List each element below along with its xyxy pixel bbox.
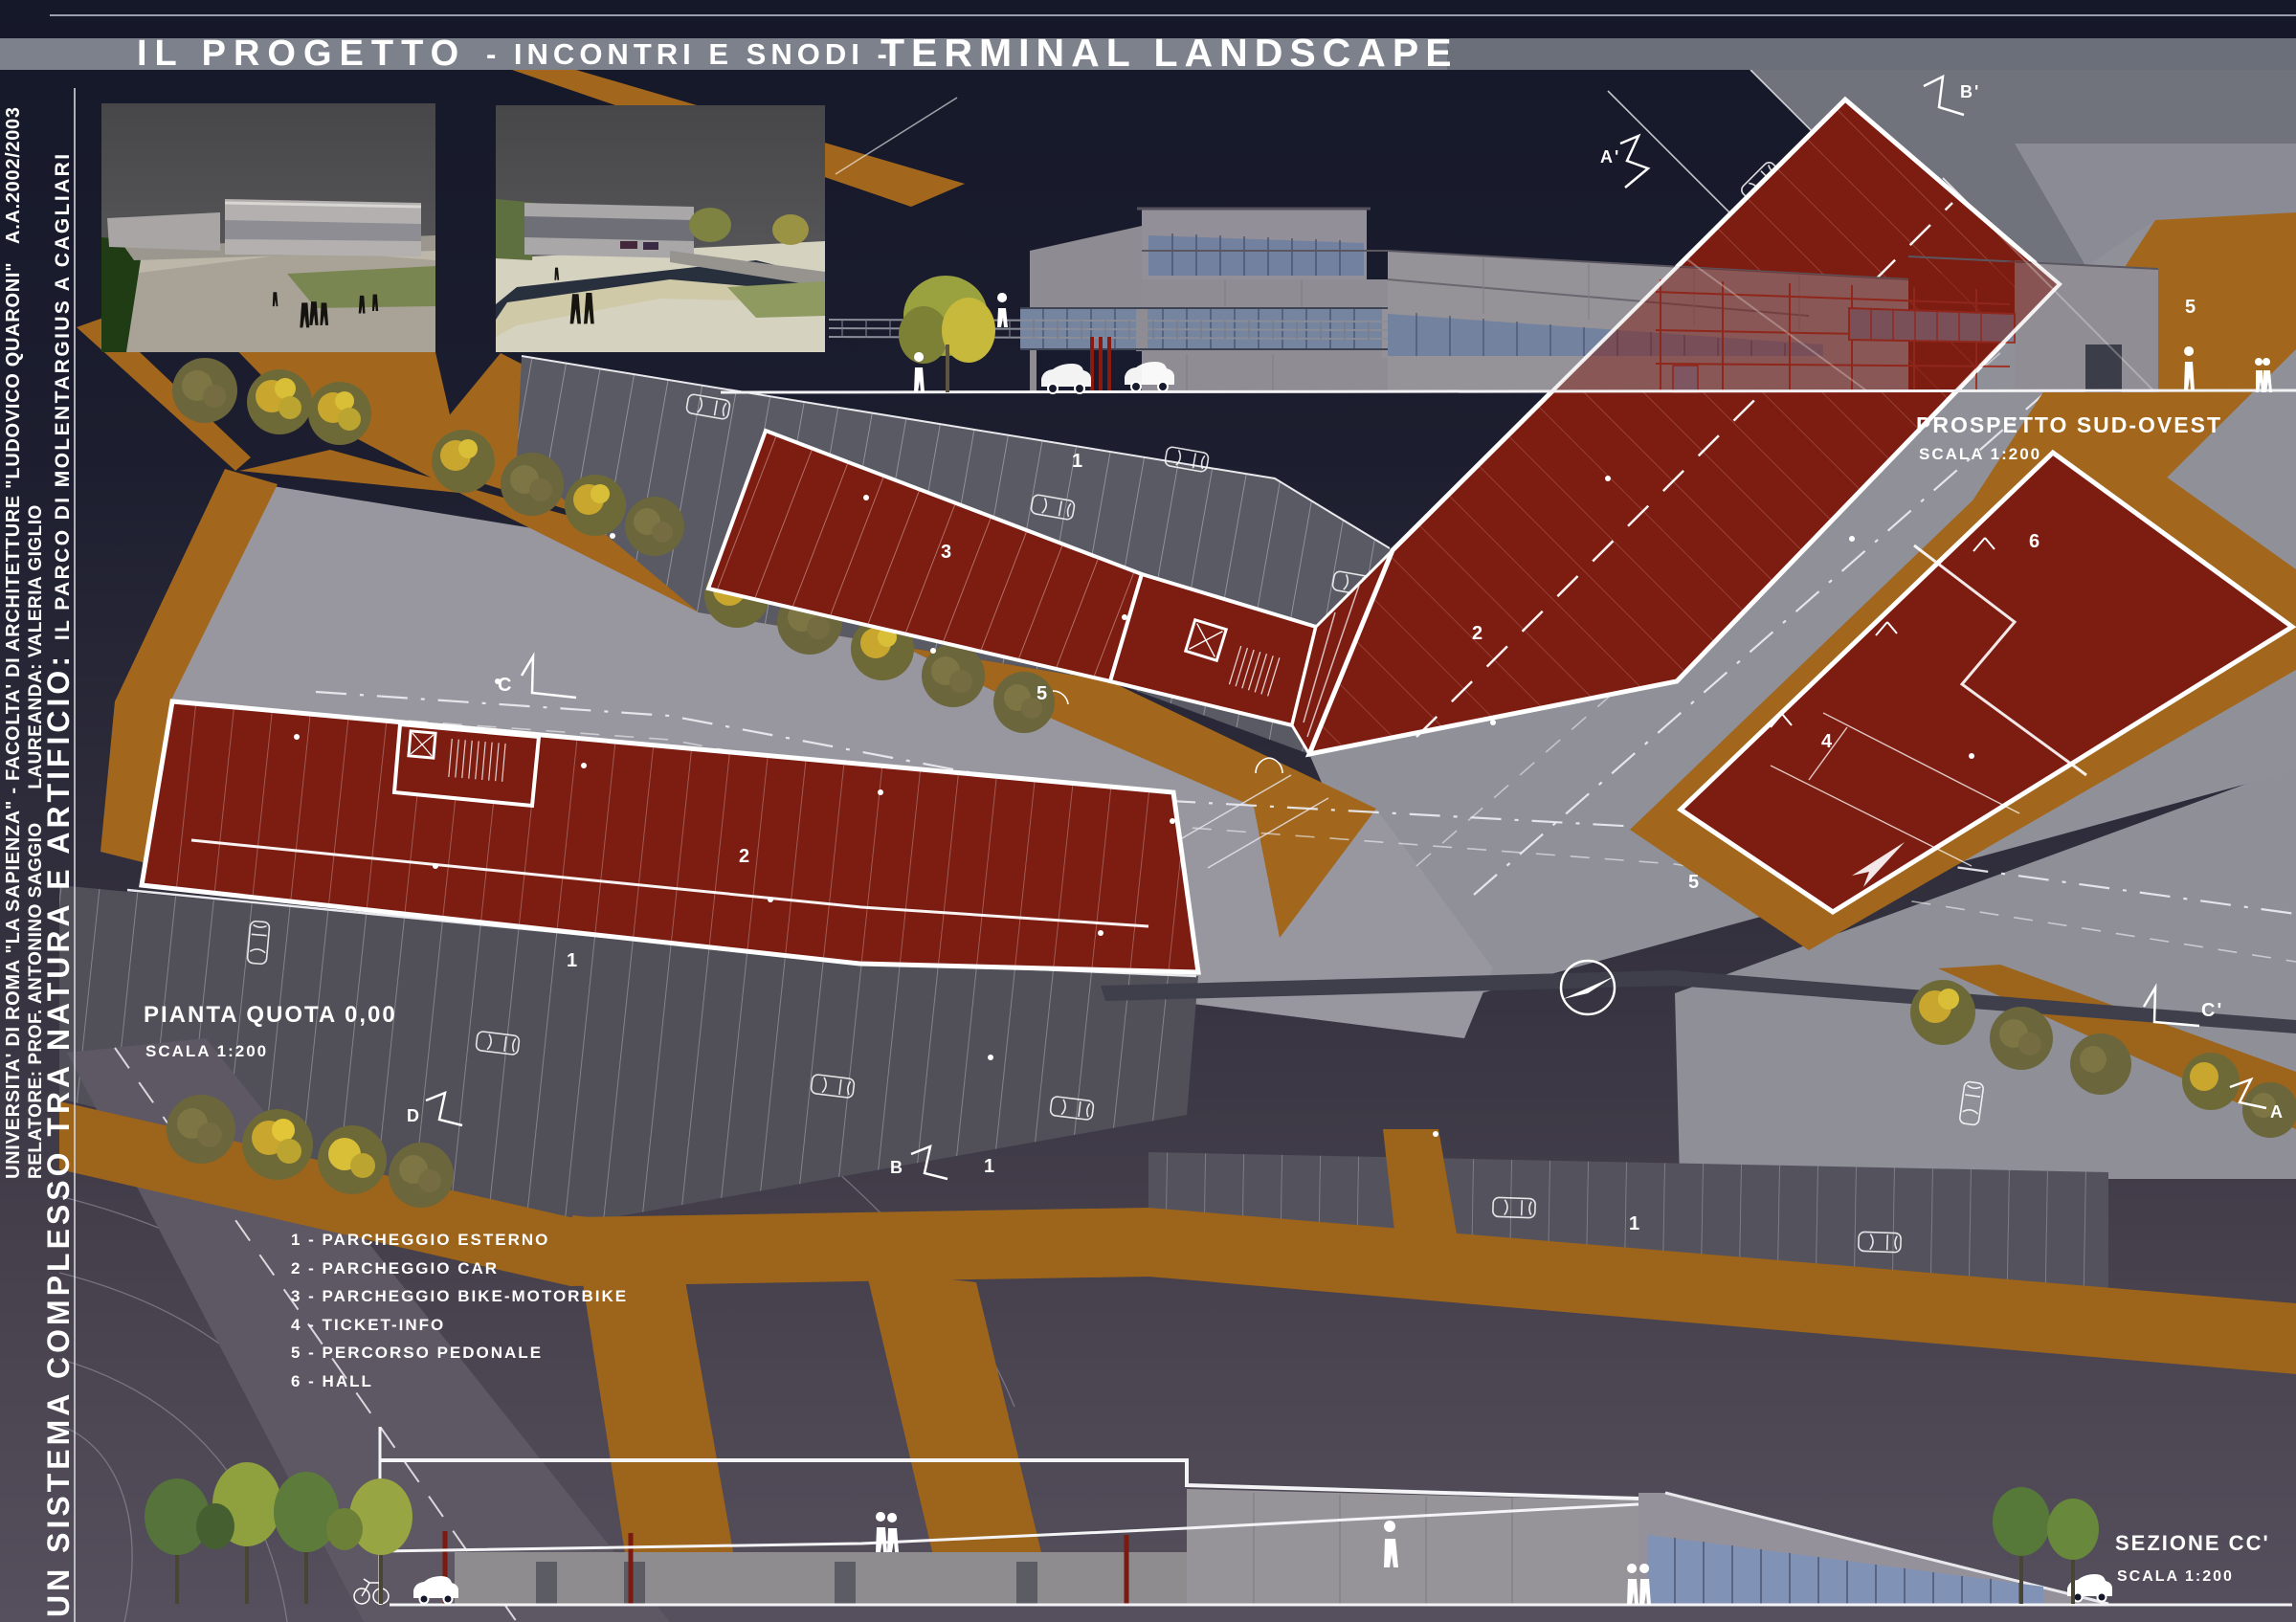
svg-text:5: 5 [1688, 872, 1701, 893]
svg-text:4 - TICKET-INFO: 4 - TICKET-INFO [291, 1316, 445, 1334]
svg-text:5: 5 [2185, 297, 2197, 318]
svg-text:UNIVERSITA' DI ROMA "LA SAPIEN: UNIVERSITA' DI ROMA "LA SAPIENZA" - FACO… [3, 106, 24, 1179]
svg-text:1: 1 [567, 950, 579, 971]
svg-text:1: 1 [1629, 1213, 1641, 1234]
svg-text:C': C' [2201, 1000, 2223, 1021]
svg-text:2: 2 [1472, 623, 1484, 644]
svg-text:IL PROGETTO: IL PROGETTO [137, 33, 466, 74]
svg-text:B: B [890, 1158, 904, 1177]
svg-text:- INCONTRI E SNODI -: - INCONTRI E SNODI - [486, 37, 892, 71]
svg-text:6 - HALL: 6 - HALL [291, 1372, 373, 1390]
svg-text:3 - PARCHEGGIO BIKE-MOTORBIKE: 3 - PARCHEGGIO BIKE-MOTORBIKE [291, 1287, 628, 1305]
svg-text:1: 1 [1072, 451, 1084, 472]
svg-text:SCALA 1:200: SCALA 1:200 [1919, 445, 2041, 463]
svg-text:2: 2 [739, 846, 751, 867]
svg-text:3: 3 [941, 542, 953, 563]
svg-text:PROSPETTO SUD-OVEST: PROSPETTO SUD-OVEST [1916, 412, 2222, 437]
svg-text:4: 4 [1821, 731, 1834, 752]
svg-text:SCALA 1:200: SCALA 1:200 [2117, 1568, 2234, 1585]
svg-text:1 - PARCHEGGIO ESTERNO: 1 - PARCHEGGIO ESTERNO [291, 1231, 549, 1249]
svg-text:B': B' [1960, 82, 1980, 101]
svg-text:5: 5 [1037, 683, 1049, 704]
svg-text:PIANTA QUOTA 0,00: PIANTA QUOTA 0,00 [144, 1002, 397, 1028]
svg-text:D: D [407, 1106, 421, 1125]
svg-text:TERMINAL LANDSCAPE: TERMINAL LANDSCAPE [881, 31, 1459, 75]
svg-text:SCALA 1:200: SCALA 1:200 [145, 1042, 268, 1060]
svg-text:SEZIONE CC': SEZIONE CC' [2115, 1531, 2270, 1555]
svg-text:A: A [2270, 1102, 2285, 1122]
svg-text:C: C [498, 675, 513, 696]
svg-text:A': A' [1600, 147, 1620, 167]
svg-text:5 - PERCORSO PEDONALE: 5 - PERCORSO PEDONALE [291, 1344, 543, 1362]
svg-text:2 - PARCHEGGIO CAR: 2 - PARCHEGGIO CAR [291, 1259, 499, 1278]
svg-text:6: 6 [2029, 531, 2041, 552]
svg-text:1: 1 [984, 1156, 996, 1177]
